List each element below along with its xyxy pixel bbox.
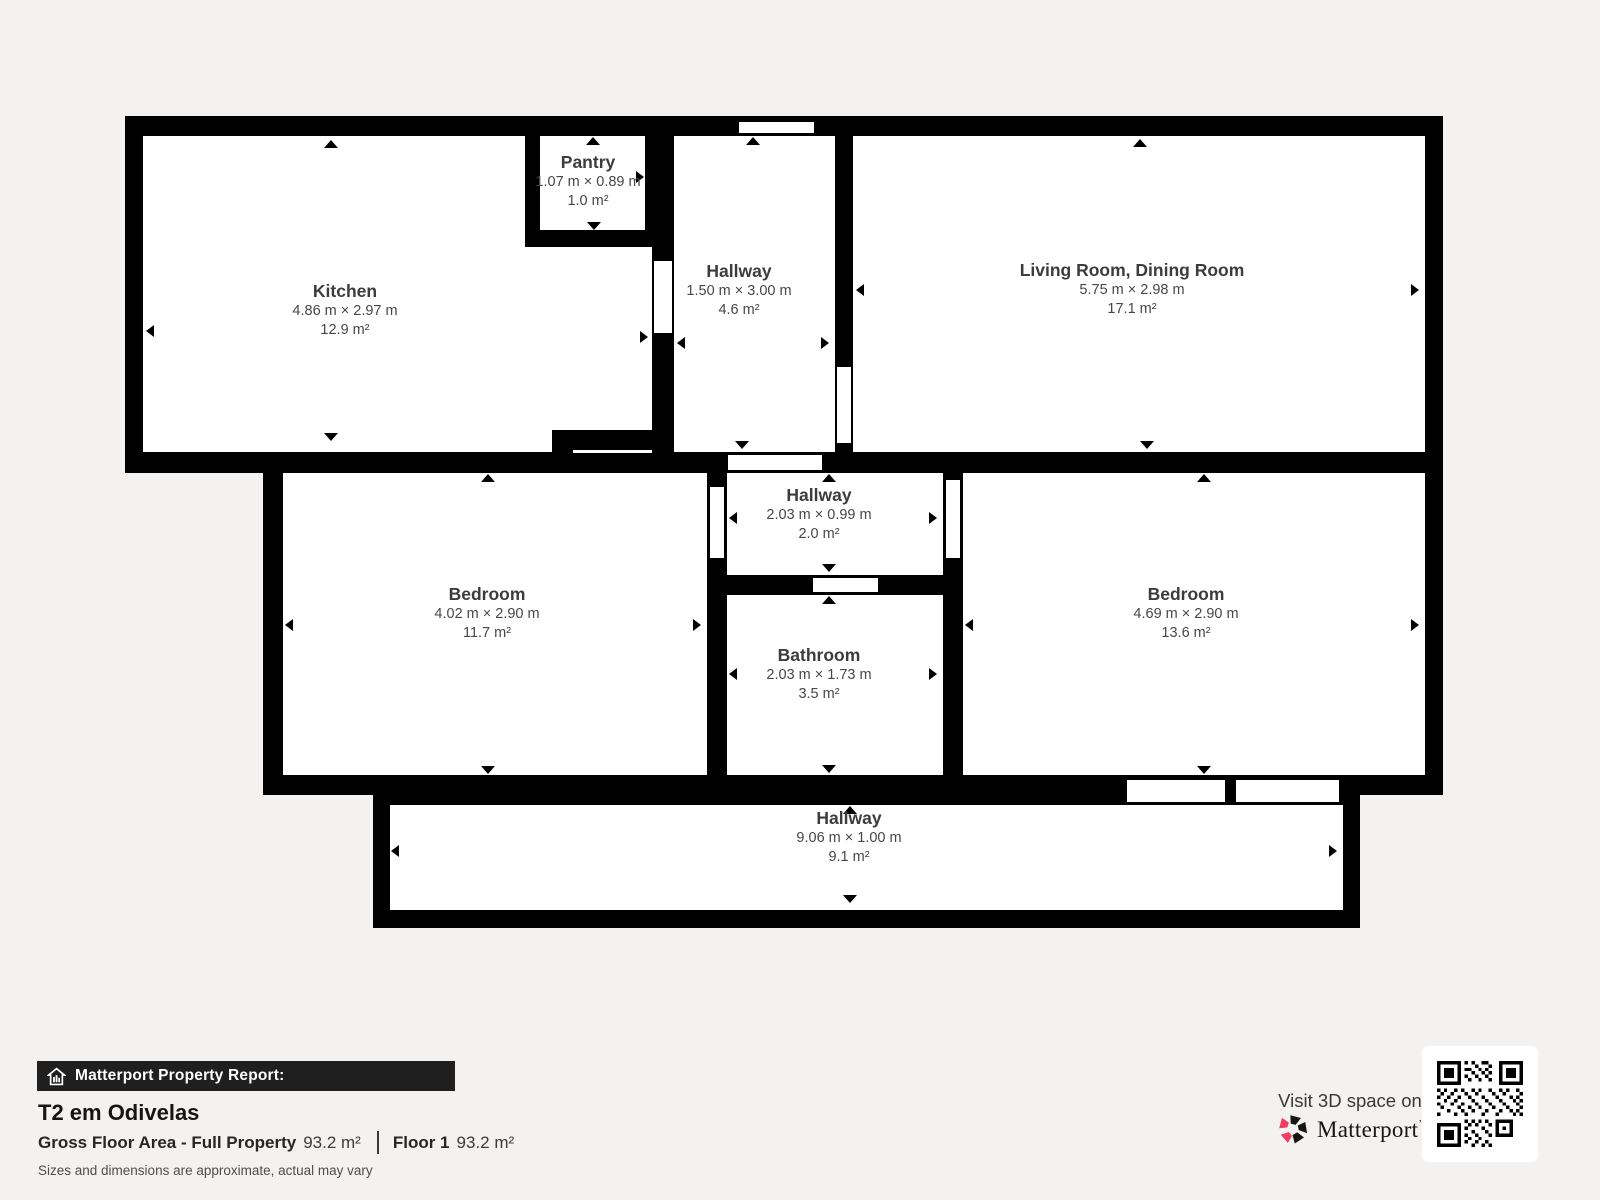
matterport-wordmark: Matterport xyxy=(1317,1117,1418,1143)
room-label-kitchen: Kitchen 4.86 m × 2.97 m 12.9 m² xyxy=(292,280,397,340)
door-opening-hallT-hallM xyxy=(728,455,822,470)
dim-arrow-up xyxy=(822,596,836,604)
floor-area-line: Gross Floor Area - Full Property 93.2 m²… xyxy=(38,1131,516,1154)
dim-arrow-left xyxy=(391,845,399,857)
room-name: Hallway xyxy=(766,484,871,506)
room-label-bedroom-right: Bedroom 4.69 m × 2.90 m 13.6 m² xyxy=(1133,583,1238,643)
dim-arrow-right xyxy=(929,512,937,524)
dim-arrow-left xyxy=(856,284,864,296)
room-area: 17.1 m² xyxy=(1020,300,1245,319)
door-opening-hallM-bedR xyxy=(946,480,960,558)
dim-arrow-right xyxy=(693,619,701,631)
matterport-mark-icon xyxy=(1278,1114,1309,1145)
gfa-label: Gross Floor Area - Full Property xyxy=(38,1133,296,1153)
disclaimer-text: Sizes and dimensions are approximate, ac… xyxy=(38,1163,373,1178)
dim-arrow-left xyxy=(677,337,685,349)
room-area: 2.0 m² xyxy=(766,525,871,544)
floor-label: Floor 1 xyxy=(393,1133,450,1153)
room-area: 1.0 m² xyxy=(535,192,640,211)
room-area: 3.5 m² xyxy=(766,685,871,704)
room-size: 4.86 m × 2.97 m xyxy=(292,302,397,321)
door-opening-hallM-bedL xyxy=(710,487,724,558)
wall-hallwayB-bottom xyxy=(373,910,1360,928)
room-label-bathroom: Bathroom 2.03 m × 1.73 m 3.5 m² xyxy=(766,644,871,704)
door-opening-hallM-bath xyxy=(813,578,878,592)
dim-arrow-down xyxy=(1140,441,1154,449)
room-size: 2.03 m × 1.73 m xyxy=(766,666,871,685)
wall-left-outer xyxy=(125,116,143,472)
room-name: Hallway xyxy=(686,260,791,282)
dim-arrow-left xyxy=(729,668,737,680)
dim-arrow-up xyxy=(586,137,600,145)
qr-code xyxy=(1422,1046,1538,1162)
room-size: 4.69 m × 2.90 m xyxy=(1133,605,1238,624)
dim-arrow-down xyxy=(843,895,857,903)
gfa-value: 93.2 m² xyxy=(303,1133,361,1153)
room-size: 4.02 m × 2.90 m xyxy=(434,605,539,624)
report-bar: Matterport Property Report: xyxy=(37,1061,455,1091)
room-size: 5.75 m × 2.98 m xyxy=(1020,281,1245,300)
dim-arrow-left xyxy=(285,619,293,631)
dim-arrow-down xyxy=(735,441,749,449)
door-opening-bedR-hallB-2 xyxy=(1236,780,1339,802)
room-name: Bedroom xyxy=(1133,583,1238,605)
room-label-hallway-top: Hallway 1.50 m × 3.00 m 4.6 m² xyxy=(686,260,791,320)
room-name: Pantry xyxy=(535,151,640,173)
room-size: 9.06 m × 1.00 m xyxy=(796,829,901,848)
dim-arrow-down xyxy=(481,766,495,774)
dim-arrow-right xyxy=(1329,845,1337,857)
room-label-pantry: Pantry 1.07 m × 0.89 m 1.0 m² xyxy=(535,151,640,211)
wall-hallwayB-left xyxy=(373,775,390,928)
qr-code-image xyxy=(1430,1054,1530,1154)
window-kitchen-notch xyxy=(573,450,652,453)
room-area: 13.6 m² xyxy=(1133,624,1238,643)
room-label-hallway-bottom: Hallway 9.06 m × 1.00 m 9.1 m² xyxy=(796,807,901,867)
dim-arrow-down xyxy=(822,765,836,773)
dim-arrow-up xyxy=(481,474,495,482)
dim-arrow-up xyxy=(1197,474,1211,482)
dim-arrow-left xyxy=(146,325,154,337)
room-area: 4.6 m² xyxy=(686,301,791,320)
report-bar-label: Matterport Property Report: xyxy=(75,1067,285,1085)
dim-arrow-down xyxy=(324,433,338,441)
room-size: 1.07 m × 0.89 m xyxy=(535,173,640,192)
door-opening-bedR-hallB-1 xyxy=(1127,780,1225,802)
house-chart-icon xyxy=(47,1067,66,1086)
dim-arrow-up xyxy=(1133,139,1147,147)
dim-arrow-down xyxy=(1197,766,1211,774)
room-area: 11.7 m² xyxy=(434,624,539,643)
property-title: T2 em Odivelas xyxy=(38,1100,199,1126)
dim-arrow-right xyxy=(1411,284,1419,296)
room-area: 9.1 m² xyxy=(796,848,901,867)
dim-arrow-right xyxy=(1411,619,1419,631)
page: Kitchen 4.86 m × 2.97 m 12.9 m² Pantry 1… xyxy=(0,0,1600,1200)
dim-arrow-up xyxy=(746,137,760,145)
room-name: Living Room, Dining Room xyxy=(1020,259,1245,281)
dim-arrow-right xyxy=(821,337,829,349)
room-label-living-dining: Living Room, Dining Room 5.75 m × 2.98 m… xyxy=(1020,259,1245,319)
visit-3d-text: Visit 3D space on xyxy=(1278,1090,1422,1112)
matterport-logo: Matterportʼ xyxy=(1278,1114,1422,1145)
window-hallT-top xyxy=(739,122,814,133)
dim-arrow-right xyxy=(929,668,937,680)
room-name: Hallway xyxy=(796,807,901,829)
room-name: Bedroom xyxy=(434,583,539,605)
dim-arrow-up xyxy=(324,140,338,148)
wall-hallwayB-right xyxy=(1343,775,1360,928)
room-size: 2.03 m × 0.99 m xyxy=(766,506,871,525)
room-size: 1.50 m × 3.00 m xyxy=(686,282,791,301)
dim-arrow-left xyxy=(965,619,973,631)
door-opening-hallT-living xyxy=(837,367,851,443)
dim-arrow-up xyxy=(822,474,836,482)
dim-arrow-left xyxy=(729,512,737,524)
room-label-bedroom-left: Bedroom 4.02 m × 2.90 m 11.7 m² xyxy=(434,583,539,643)
room-area: 12.9 m² xyxy=(292,321,397,340)
wall-bedroomL-left xyxy=(263,452,283,795)
room-label-hallway-middle: Hallway 2.03 m × 0.99 m 2.0 m² xyxy=(766,484,871,544)
vertical-divider xyxy=(377,1131,379,1154)
room-name: Kitchen xyxy=(292,280,397,302)
dim-arrow-down xyxy=(822,564,836,572)
floor-value: 93.2 m² xyxy=(457,1133,515,1153)
room-name: Bathroom xyxy=(766,644,871,666)
dim-arrow-down xyxy=(587,222,601,230)
dim-arrow-right xyxy=(640,331,648,343)
door-opening-kitchen-hallT xyxy=(654,261,672,333)
